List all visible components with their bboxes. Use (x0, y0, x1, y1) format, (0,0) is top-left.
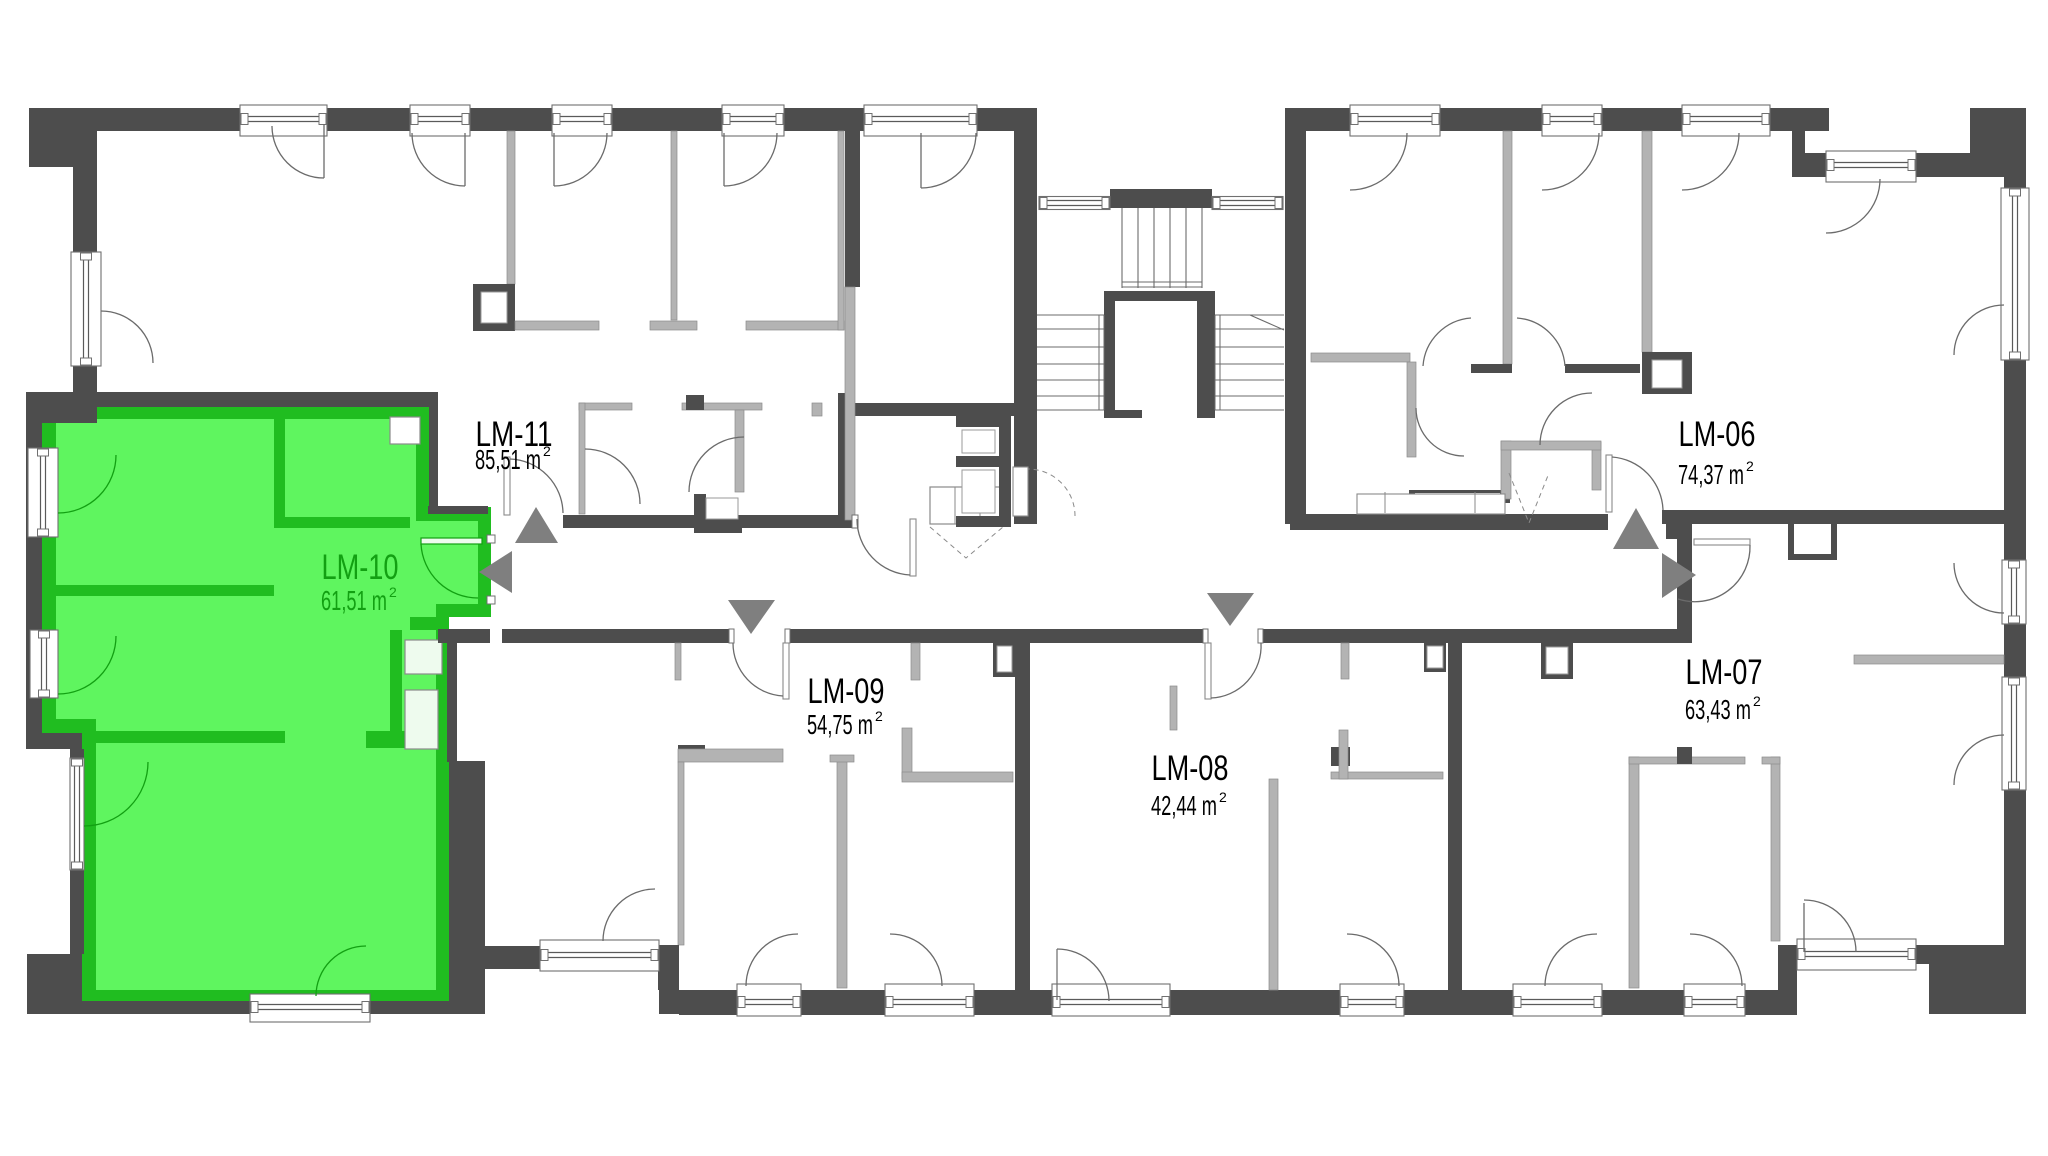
svg-text:2: 2 (1219, 789, 1227, 805)
svg-text:LM-09: LM-09 (808, 672, 885, 711)
svg-text:2: 2 (543, 443, 551, 459)
svg-text:LM-06: LM-06 (1679, 415, 1756, 454)
svg-text:2: 2 (1753, 693, 1761, 709)
svg-text:2: 2 (1746, 458, 1754, 474)
svg-text:74,37 m: 74,37 m (1678, 459, 1744, 490)
svg-text:54,75 m: 54,75 m (807, 709, 873, 740)
svg-text:LM-08: LM-08 (1152, 749, 1229, 788)
svg-text:42,44 m: 42,44 m (1151, 790, 1217, 821)
svg-text:2: 2 (389, 584, 397, 600)
svg-text:61,51 m: 61,51 m (321, 585, 387, 616)
svg-text:85,51 m: 85,51 m (475, 444, 541, 475)
svg-text:63,43 m: 63,43 m (1685, 694, 1751, 725)
svg-text:2: 2 (875, 708, 883, 724)
svg-text:LM-07: LM-07 (1686, 653, 1763, 692)
svg-text:LM-10: LM-10 (322, 548, 399, 587)
